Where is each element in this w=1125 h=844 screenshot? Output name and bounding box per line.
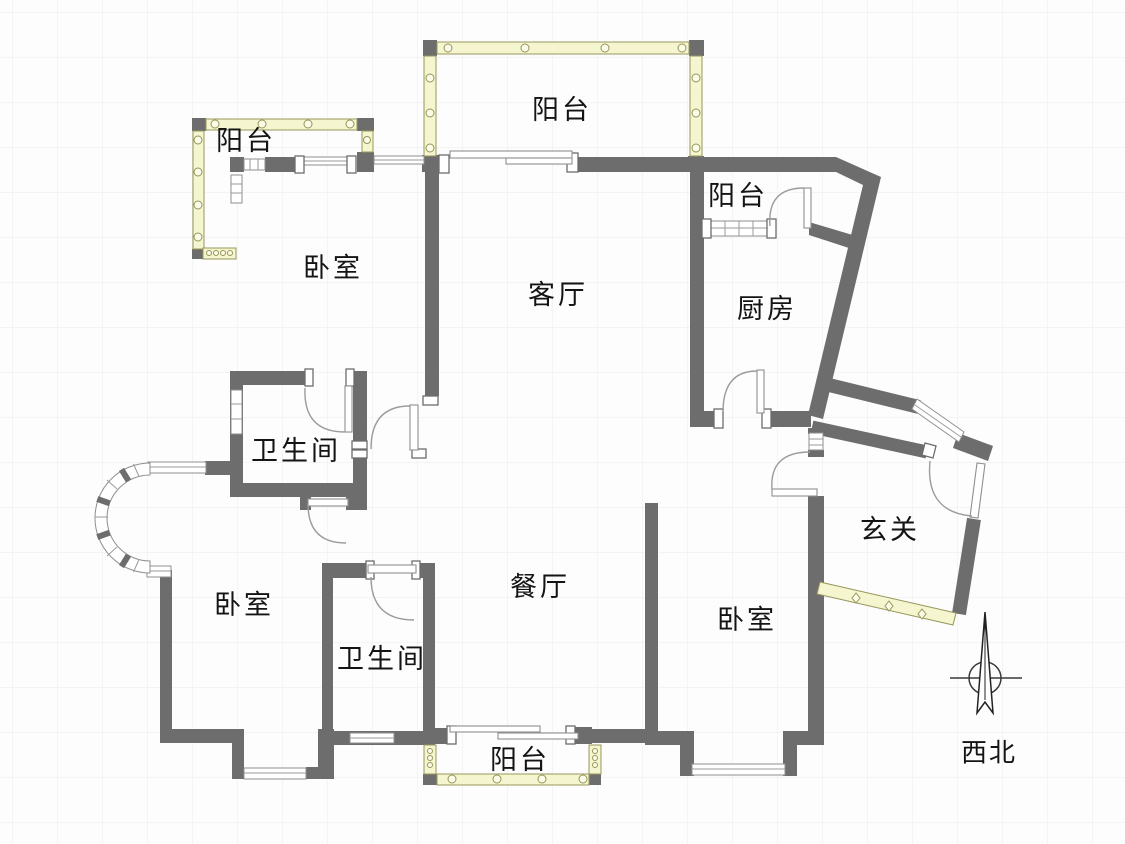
door-hallway [410, 405, 418, 450]
room-label-entry-hall: 玄关 [860, 515, 920, 545]
sliding-door-top-balcony [450, 151, 572, 158]
room-label-balcony-bottom: 阳台 [490, 745, 550, 775]
room-label-balcony-top: 阳台 [532, 95, 592, 125]
room-label-bathroom-north: 卫生间 [251, 436, 341, 466]
compass-direction-label: 西北 [961, 739, 1017, 768]
room-label-kitchen: 厨房 [737, 294, 797, 324]
floor-plan-canvas: 阳台 阳台 阳台 卧室 客厅 厨房 卫生间 玄关 卧室 餐厅 卫生间 卧室 阳台… [0, 0, 1125, 844]
room-label-dining-room: 餐厅 [510, 572, 570, 602]
room-label-living-room: 客厅 [528, 280, 588, 310]
door-kitchen [757, 370, 764, 413]
room-label-bedroom-west: 卧室 [214, 590, 274, 620]
room-label-bedroom-north: 卧室 [303, 253, 363, 283]
door-bedroom-west [308, 499, 348, 506]
room-label-balcony-kitchen: 阳台 [708, 181, 768, 211]
door-bathroom-south [368, 565, 416, 573]
sliding-door-bottom-balcony [450, 726, 540, 732]
door-entry-hall [772, 489, 817, 496]
room-label-balcony-top-left: 阳台 [216, 126, 276, 156]
floor-plan-page: 阳台 阳台 阳台 卧室 客厅 厨房 卫生间 玄关 卧室 餐厅 卫生间 卧室 阳台… [0, 0, 1125, 844]
room-label-bedroom-east: 卧室 [717, 605, 777, 635]
door-bathroom-north [345, 386, 352, 432]
door-kitchen-balcony [804, 188, 811, 228]
room-label-bathroom-south: 卫生间 [337, 644, 427, 674]
